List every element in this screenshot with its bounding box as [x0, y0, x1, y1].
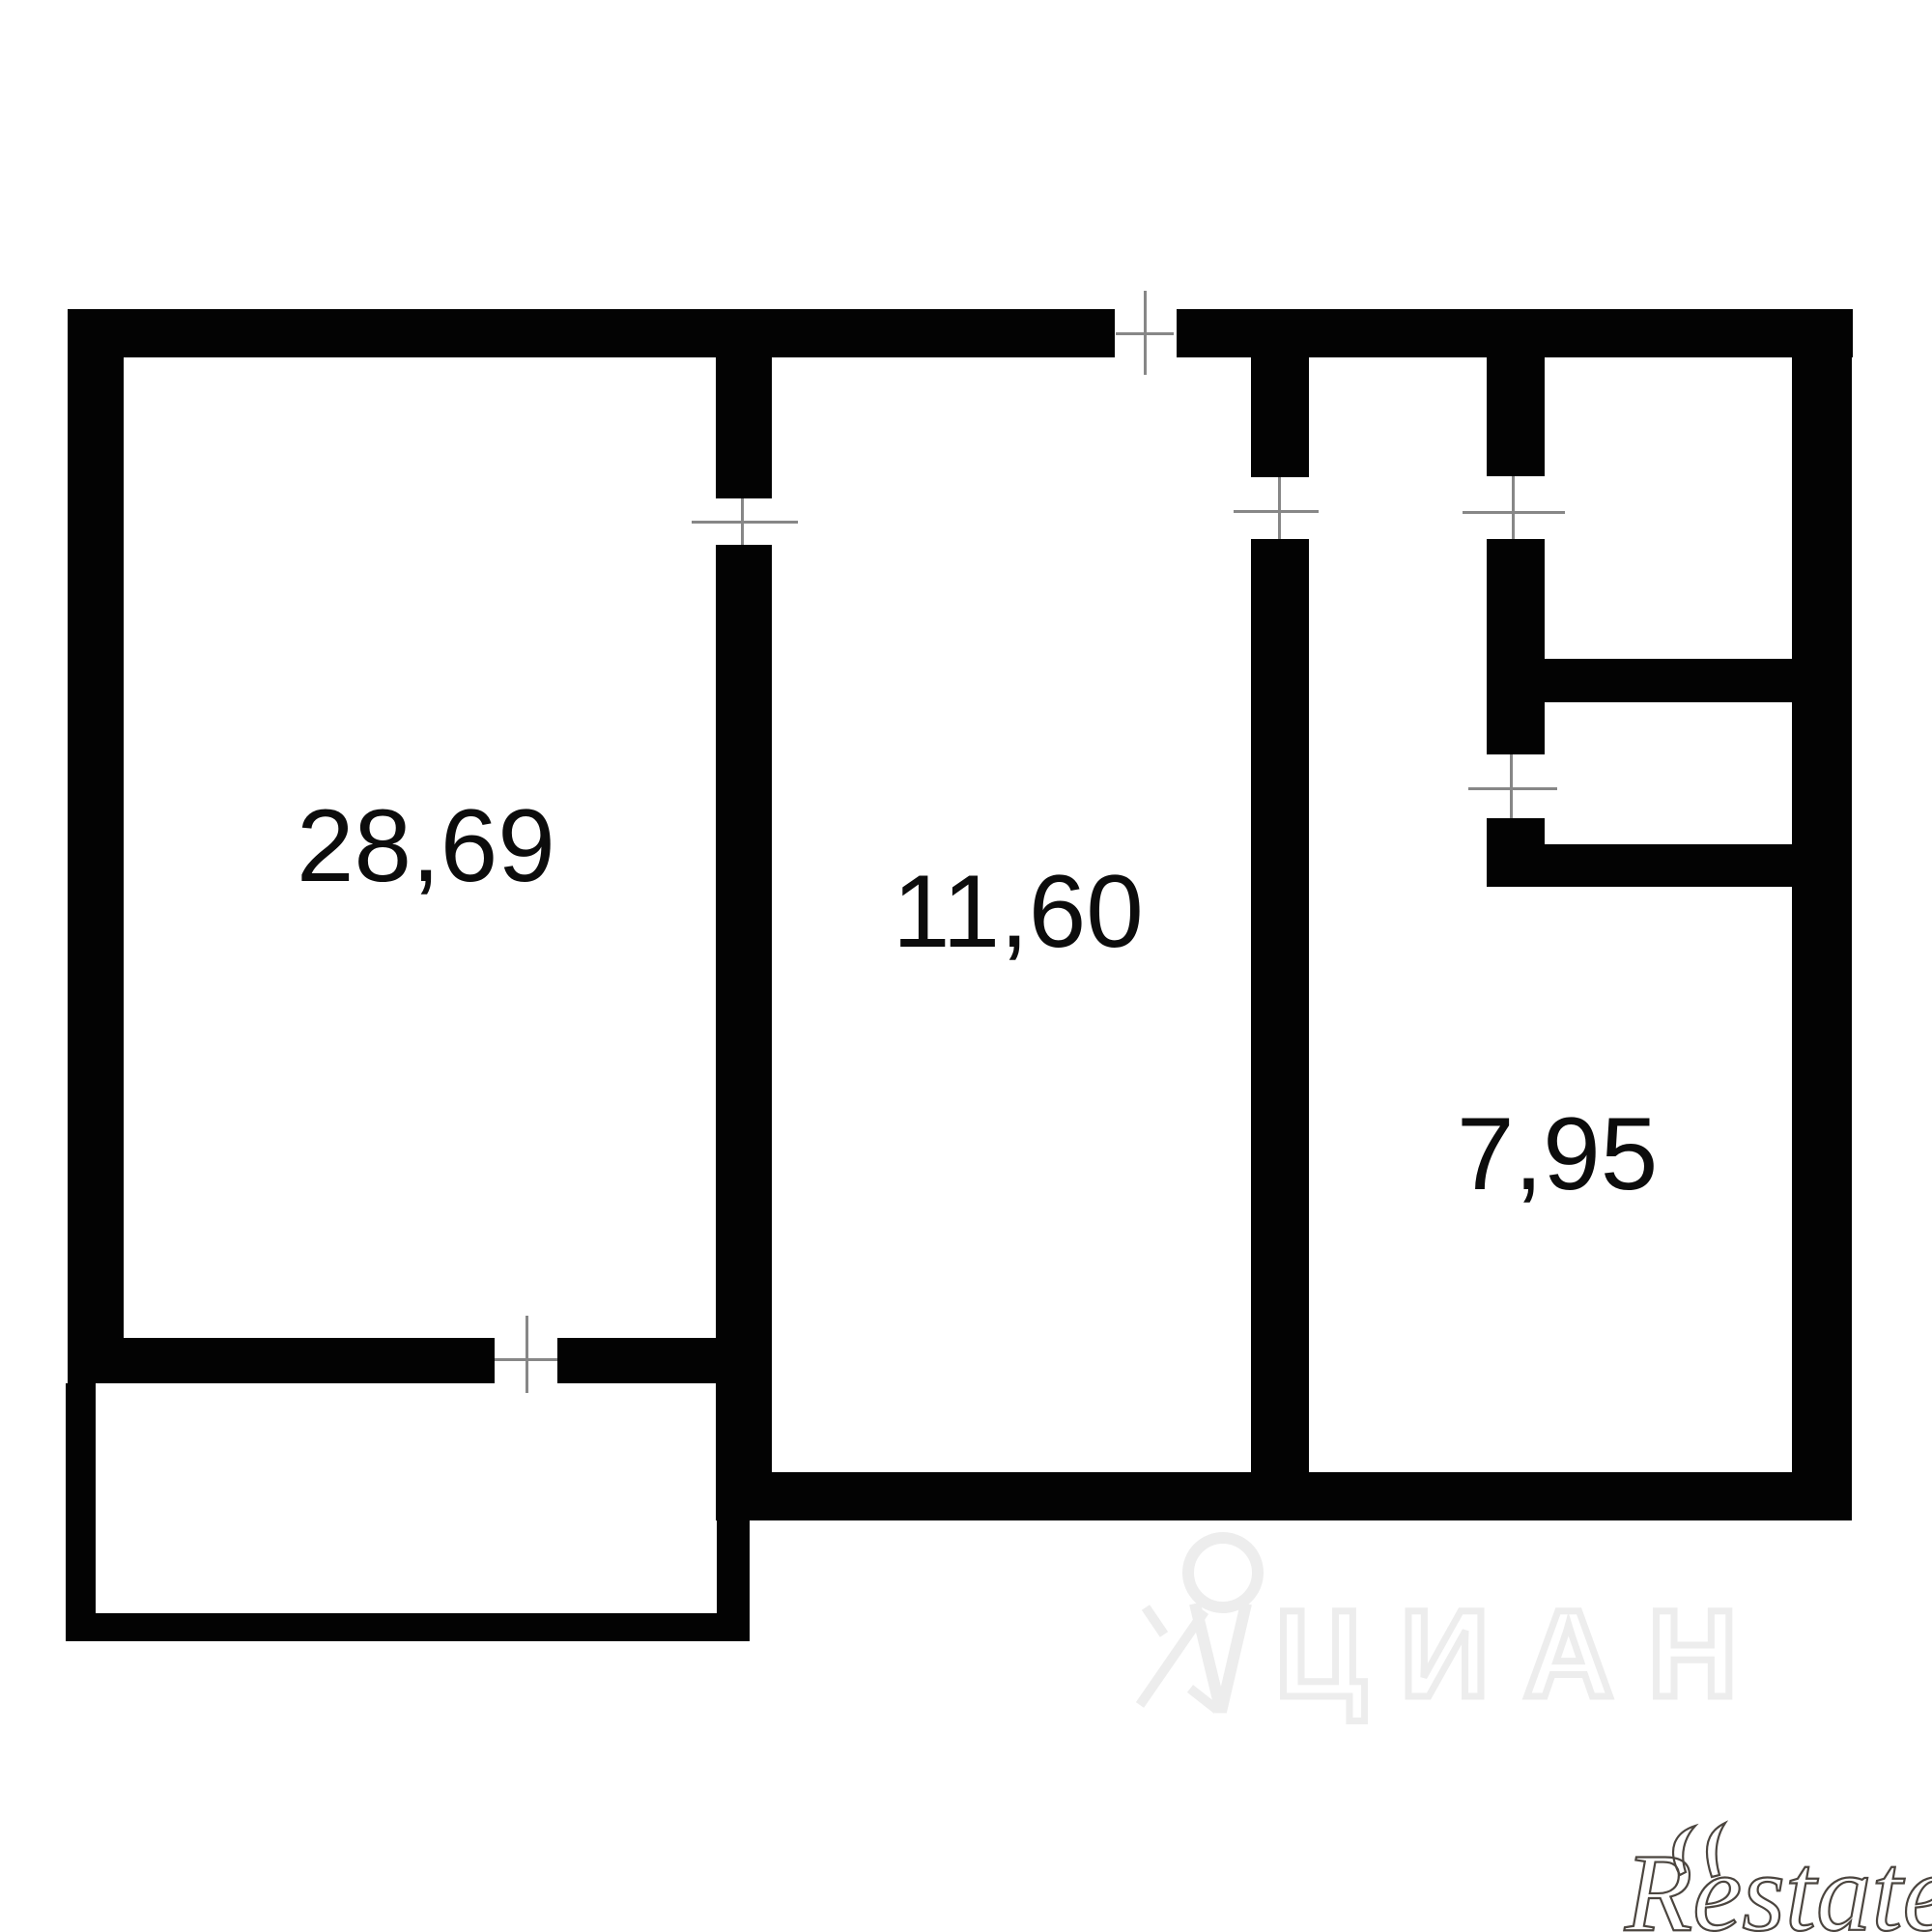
svg-text:ЦИАН: ЦИАН [1275, 1585, 1772, 1723]
svg-text:Restate: Restate [1624, 1832, 1932, 1932]
